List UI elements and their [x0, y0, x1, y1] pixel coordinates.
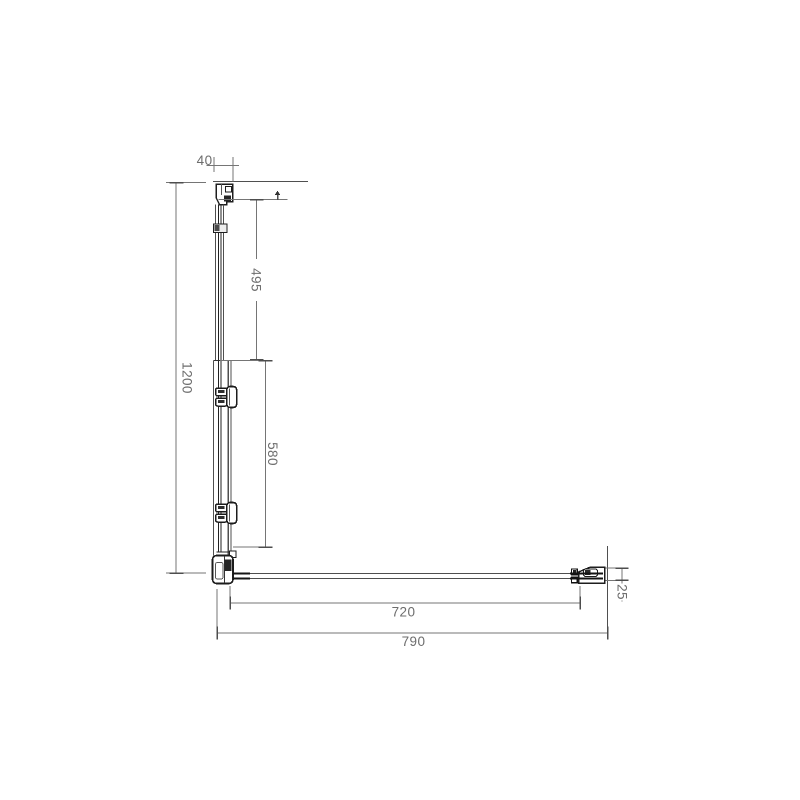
hinge-pin-bottom: [218, 400, 225, 403]
corner-bracket: [213, 551, 237, 584]
dim-40-label: 40: [197, 153, 213, 168]
dim-25-label: 25: [615, 584, 630, 600]
support-bar: [233, 574, 578, 579]
technical-drawing: 40 1200 495 580 25: [0, 0, 800, 800]
hinge-pin-bottom: [218, 516, 225, 519]
dim-495-label: 495: [249, 268, 264, 292]
panel-ref-arrow: [275, 191, 280, 195]
hinge-body: [227, 387, 237, 408]
dim-1200: 1200: [166, 183, 206, 574]
dim-720: 720: [230, 586, 580, 620]
dim-25: 25: [606, 568, 630, 602]
drawing-canvas: 40 1200 495 580 25: [0, 0, 800, 800]
dim-790-label: 790: [402, 634, 426, 649]
top-bracket-block: [224, 196, 231, 202]
dim-1200-label: 1200: [180, 362, 195, 394]
profile-connector-insert: [215, 225, 220, 231]
dim-580-label: 580: [265, 442, 280, 466]
dim-495: 495: [219, 191, 288, 360]
top-bracket-notch: [226, 187, 232, 193]
hinge-pin-top: [218, 506, 225, 509]
hinge-body: [227, 503, 237, 524]
top-wall-bracket: [216, 184, 233, 205]
dim-720-label: 720: [392, 605, 416, 620]
corner-dark-block: [225, 560, 232, 572]
right-wall-bracket: [570, 567, 605, 583]
hinge-pin-top: [218, 390, 225, 393]
dim-40: 40: [197, 153, 239, 182]
wall-lines: [213, 182, 608, 634]
